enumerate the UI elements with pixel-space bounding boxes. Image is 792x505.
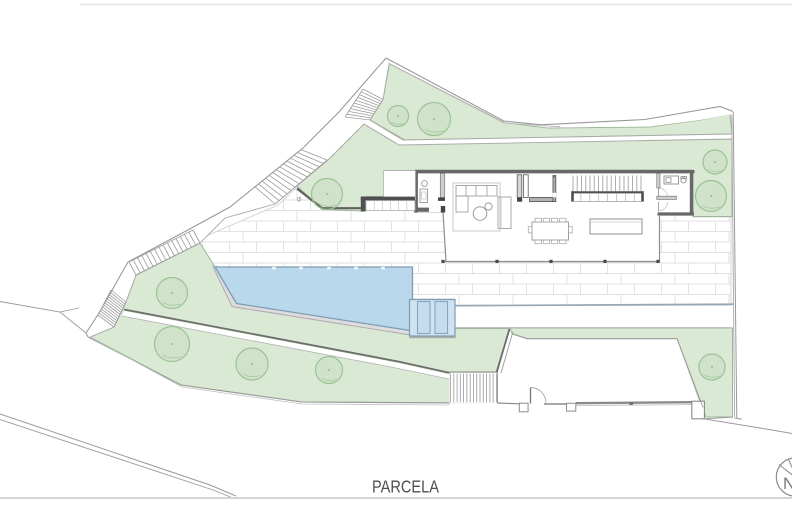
svg-text:PARCELA: PARCELA (372, 477, 439, 497)
svg-text:N: N (783, 474, 792, 493)
